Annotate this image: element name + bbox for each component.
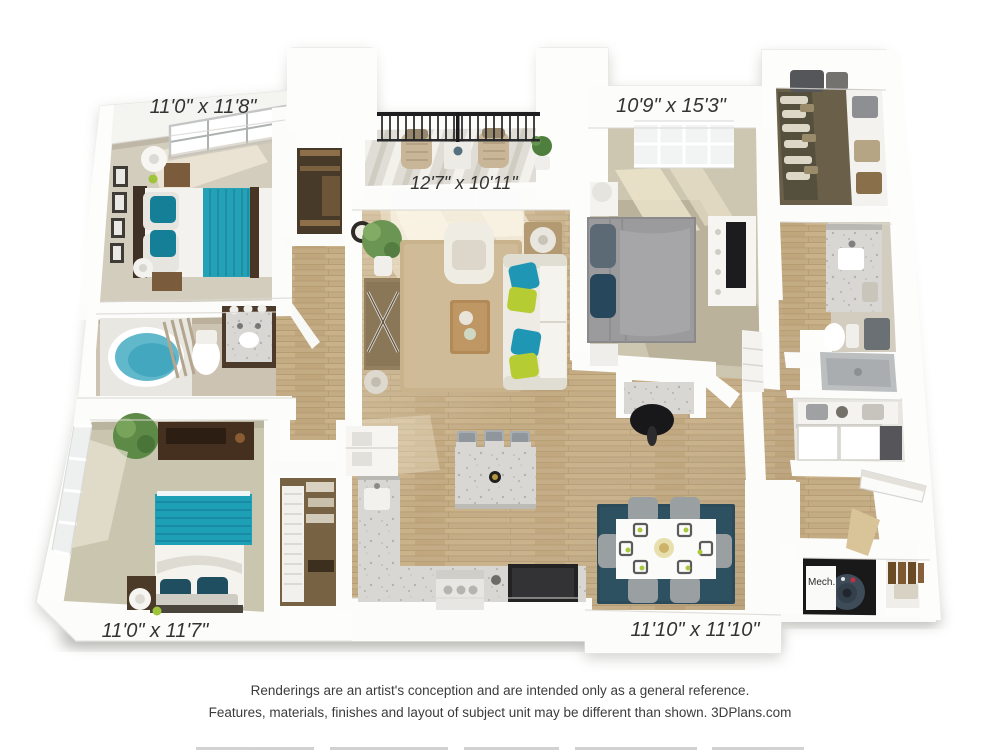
svg-text:11'0" x 11'8": 11'0" x 11'8" [150,96,258,118]
svg-text:11'10" x 11'10": 11'10" x 11'10" [631,619,761,641]
svg-text:Renderings are an artist's con: Renderings are an artist's conception an… [251,683,750,698]
svg-text:11'0" x 11'7": 11'0" x 11'7" [102,620,210,642]
svg-text:Features, materials, finishes: Features, materials, finishes and layout… [209,705,792,720]
svg-text:Mech.: Mech. [808,577,835,588]
svg-text:10'9" x 15'3": 10'9" x 15'3" [616,95,727,117]
svg-text:12'7" x 10'11": 12'7" x 10'11" [410,173,519,193]
